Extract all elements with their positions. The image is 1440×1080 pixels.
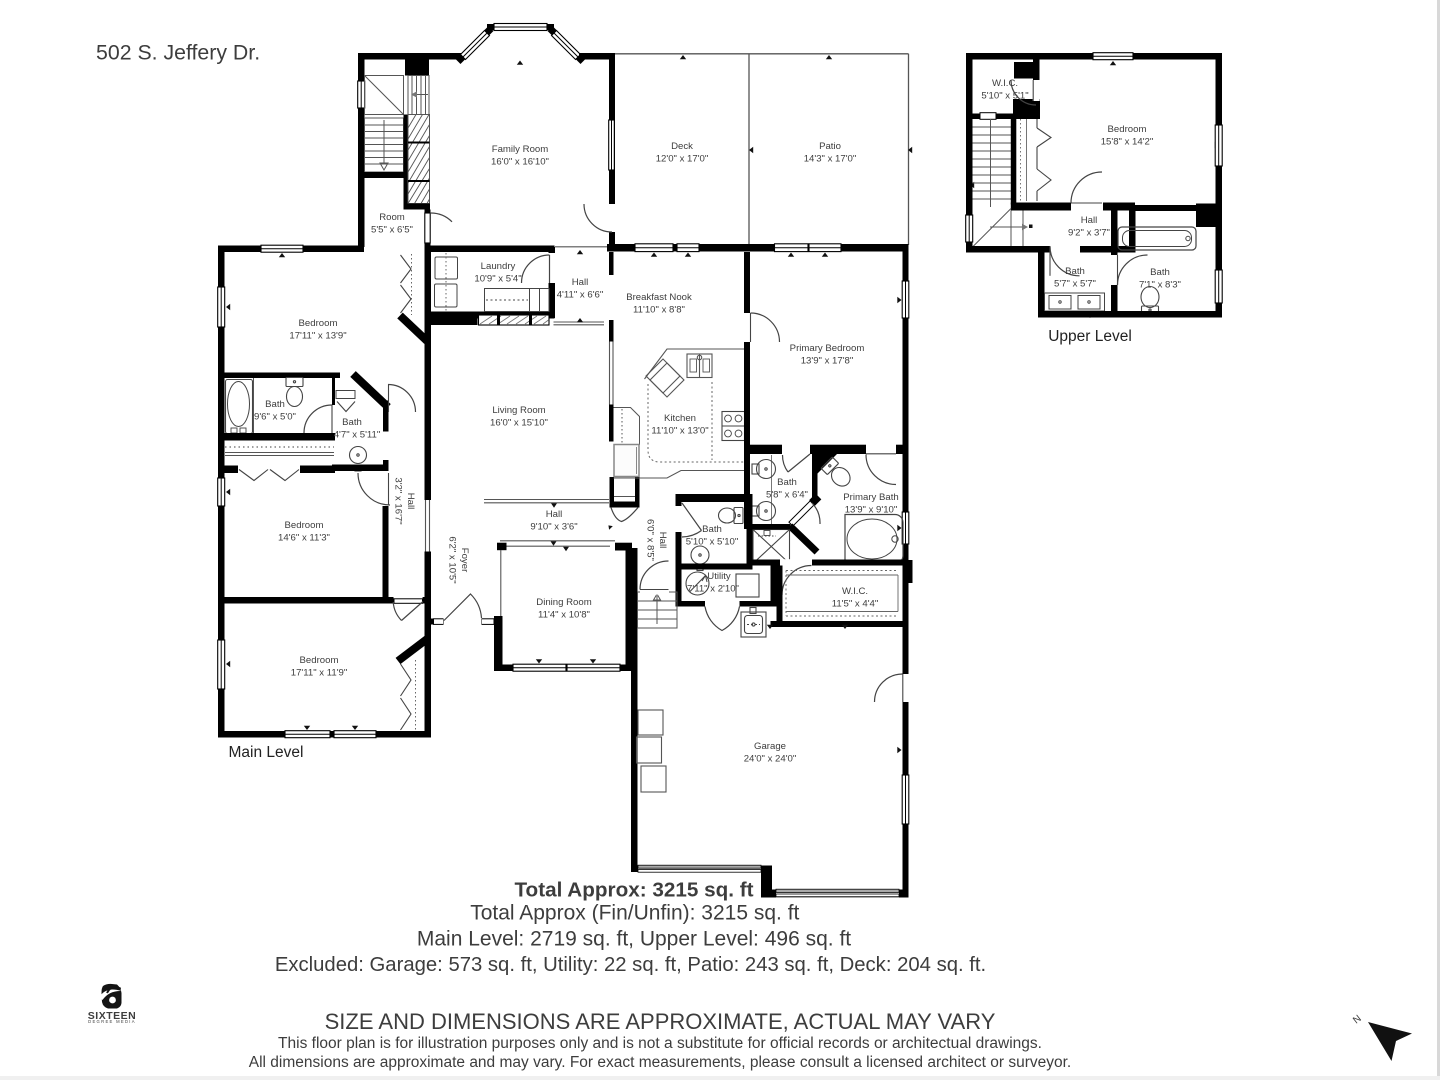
- svg-text:All dimensions are approximate: All dimensions are approximate and may v…: [249, 1054, 1071, 1071]
- svg-text:Living Room: Living Room: [492, 405, 545, 416]
- svg-text:6'2" x 10'5": 6'2" x 10'5": [447, 536, 458, 583]
- svg-text:Primary Bath: Primary Bath: [843, 492, 898, 503]
- svg-text:17'11" x 11'9": 17'11" x 11'9": [291, 668, 348, 679]
- svg-text:4'7" x 5'11": 4'7" x 5'11": [334, 430, 381, 441]
- svg-text:Patio: Patio: [819, 141, 841, 152]
- svg-text:10'9" x 5'4": 10'9" x 5'4": [474, 274, 521, 285]
- svg-text:12'0" x 17'0": 12'0" x 17'0": [656, 154, 709, 165]
- svg-text:13'9" x 9'10": 13'9" x 9'10": [845, 505, 898, 516]
- svg-text:Bath: Bath: [265, 399, 285, 410]
- svg-text:502 S. Jeffery Dr.: 502 S. Jeffery Dr.: [96, 41, 260, 65]
- svg-text:24'0" x 24'0": 24'0" x 24'0": [744, 754, 797, 765]
- svg-text:3'2" x 16'7": 3'2" x 16'7": [393, 477, 404, 524]
- svg-text:9'6" x 5'0": 9'6" x 5'0": [254, 412, 296, 423]
- svg-text:4'11" x 6'6": 4'11" x 6'6": [557, 290, 604, 301]
- svg-text:11'5" x 4'4": 11'5" x 4'4": [832, 599, 879, 610]
- svg-text:Hall: Hall: [546, 509, 563, 520]
- svg-text:Family Room: Family Room: [492, 144, 549, 155]
- svg-text:Bath: Bath: [1150, 267, 1170, 278]
- svg-text:Laundry: Laundry: [481, 261, 516, 272]
- svg-text:15'8" x 14'2": 15'8" x 14'2": [1101, 137, 1154, 148]
- svg-text:11'4" x 10'8": 11'4" x 10'8": [538, 610, 590, 621]
- svg-text:Bedroom: Bedroom: [300, 655, 339, 666]
- svg-text:11'10" x 13'0": 11'10" x 13'0": [651, 426, 708, 437]
- svg-text:Kitchen: Kitchen: [664, 413, 696, 424]
- svg-text:Total Approx: 3215 sq. ft: Total Approx: 3215 sq. ft: [514, 879, 753, 902]
- svg-text:Main Level: Main Level: [229, 744, 304, 761]
- svg-text:This floor plan is for illustr: This floor plan is for illustration purp…: [278, 1035, 1042, 1052]
- svg-text:Bath: Bath: [777, 477, 797, 488]
- svg-text:13'9" x 17'8": 13'9" x 17'8": [801, 356, 854, 367]
- svg-text:14'6" x 11'3": 14'6" x 11'3": [278, 533, 330, 544]
- svg-text:Deck: Deck: [671, 141, 693, 152]
- svg-text:W.I.C.: W.I.C.: [992, 78, 1018, 89]
- svg-text:Foyer: Foyer: [459, 548, 470, 573]
- svg-text:Upper Level: Upper Level: [1048, 328, 1132, 345]
- svg-text:Main Level: 2719 sq. ft, Upper: Main Level: 2719 sq. ft, Upper Level: 49…: [417, 928, 851, 951]
- svg-text:Hall: Hall: [405, 493, 416, 510]
- svg-text:SIZE AND DIMENSIONS ARE APPROX: SIZE AND DIMENSIONS ARE APPROXIMATE, ACT…: [325, 1009, 996, 1034]
- svg-text:Hall: Hall: [657, 532, 668, 549]
- svg-text:N: N: [1351, 1013, 1363, 1026]
- svg-text:5'7" x 5'7": 5'7" x 5'7": [1054, 279, 1096, 290]
- svg-text:Hall: Hall: [1081, 215, 1098, 226]
- svg-text:5'10" x 5'10": 5'10" x 5'10": [686, 537, 739, 548]
- svg-text:9'10" x 3'6": 9'10" x 3'6": [530, 522, 577, 533]
- svg-text:Bath: Bath: [1065, 266, 1085, 277]
- svg-text:7'11" x 2'10": 7'11" x 2'10": [687, 584, 739, 595]
- svg-text:Bath: Bath: [702, 524, 722, 535]
- svg-text:Utility: Utility: [707, 571, 731, 582]
- svg-text:Bedroom: Bedroom: [1108, 124, 1147, 135]
- svg-text:Room: Room: [379, 212, 405, 223]
- svg-text:Bath: Bath: [342, 417, 362, 428]
- svg-text:Breakfast Nook: Breakfast Nook: [626, 292, 692, 303]
- svg-text:9'2" x 3'7": 9'2" x 3'7": [1068, 228, 1110, 239]
- svg-text:W.I.C.: W.I.C.: [842, 586, 868, 597]
- svg-text:7'1" x 8'3": 7'1" x 8'3": [1139, 280, 1181, 291]
- svg-text:DEGREE MEDIA: DEGREE MEDIA: [88, 1019, 136, 1024]
- svg-text:Garage: Garage: [754, 741, 786, 752]
- svg-text:14'3" x 17'0": 14'3" x 17'0": [804, 154, 857, 165]
- svg-text:5'10" x 5'1": 5'10" x 5'1": [981, 91, 1028, 102]
- svg-text:Dining Room: Dining Room: [536, 597, 591, 608]
- svg-text:Bedroom: Bedroom: [285, 520, 324, 531]
- svg-text:Excluded: Garage: 573 sq. ft,: Excluded: Garage: 573 sq. ft, Utility: 2…: [275, 954, 986, 976]
- svg-text:Primary Bedroom: Primary Bedroom: [790, 343, 865, 354]
- svg-text:5'8" x 6'4": 5'8" x 6'4": [766, 490, 808, 501]
- svg-text:Bedroom: Bedroom: [299, 318, 338, 329]
- svg-text:5'5" x 6'5": 5'5" x 6'5": [371, 225, 413, 236]
- svg-text:16'0" x 16'10": 16'0" x 16'10": [491, 157, 549, 168]
- svg-text:Total Approx (Fin/Unfin): 3215: Total Approx (Fin/Unfin): 3215 sq. ft: [470, 902, 799, 925]
- svg-text:Hall: Hall: [572, 277, 589, 288]
- svg-text:16'0" x 15'10": 16'0" x 15'10": [490, 418, 548, 429]
- svg-text:11'10" x 8'8": 11'10" x 8'8": [633, 305, 685, 316]
- svg-text:17'11" x 13'9": 17'11" x 13'9": [289, 331, 346, 342]
- svg-text:6'0" x 8'5": 6'0" x 8'5": [645, 519, 656, 561]
